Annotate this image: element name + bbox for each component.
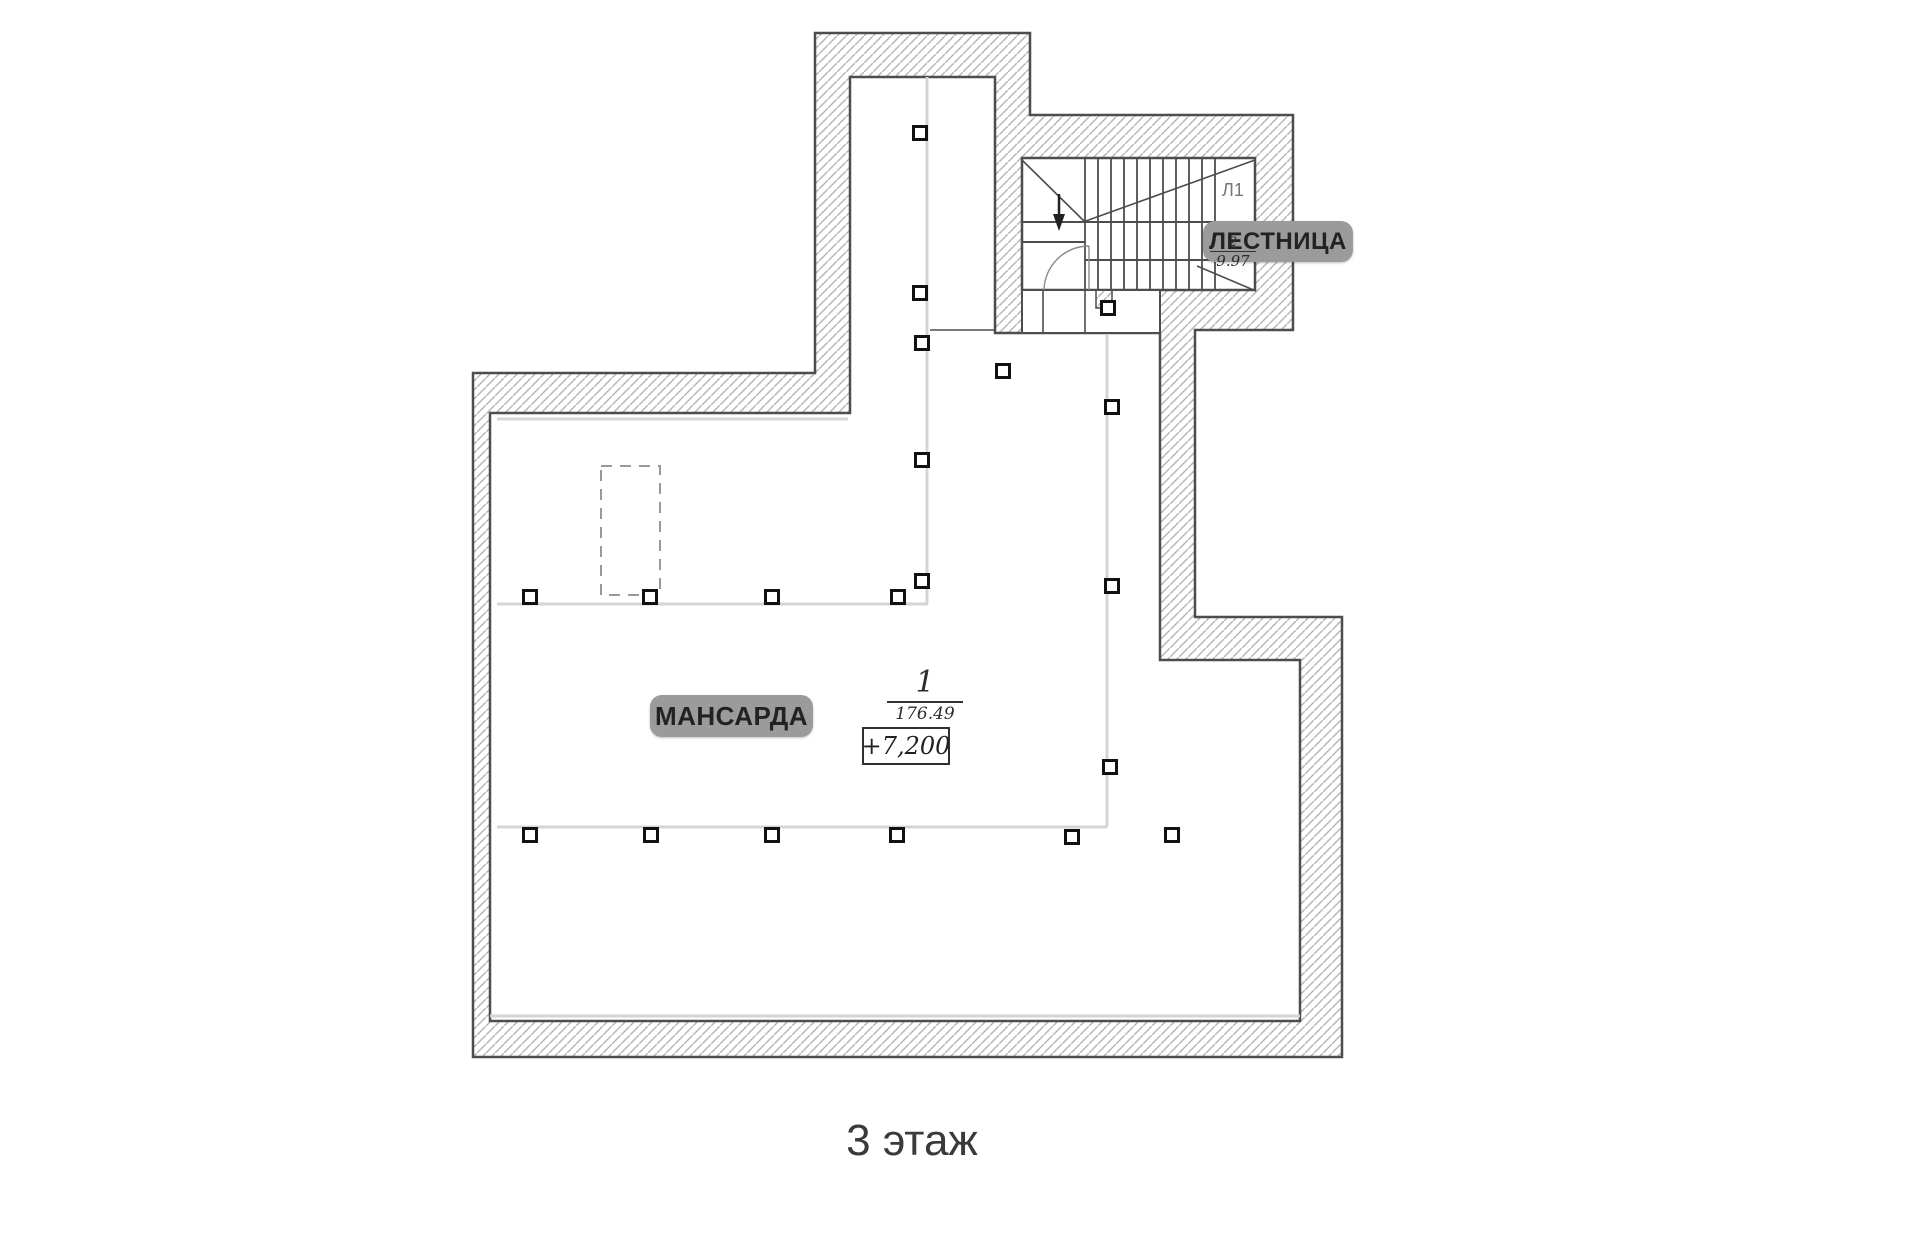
- column-marker: [766, 829, 779, 842]
- column-marker: [1104, 761, 1117, 774]
- room-number: 1: [887, 668, 963, 701]
- floor-plan-canvas: [0, 0, 1920, 1259]
- column-marker: [892, 591, 905, 604]
- room-name-tag: МАНСАРДА: [650, 695, 813, 737]
- column-marker: [524, 829, 537, 842]
- column-marker: [1102, 302, 1115, 315]
- stair-code-label: Л1: [1222, 180, 1244, 201]
- column-marker: [1106, 401, 1119, 414]
- room-area-marker: 1 176.49: [887, 668, 963, 723]
- column-marker: [914, 287, 927, 300]
- column-marker: [1106, 580, 1119, 593]
- floor-caption: 3 этаж: [762, 1116, 1062, 1166]
- column-marker: [645, 829, 658, 842]
- column-marker: [997, 365, 1010, 378]
- column-marker: [1166, 829, 1179, 842]
- floor-plan-page: МАНСАРДА ЛЕСТНИЦА Л1 1 176.49 2 9.97 +7,…: [0, 0, 1920, 1259]
- column-marker: [766, 591, 779, 604]
- dashed-shaft-outline: [601, 466, 660, 595]
- room-area-value: 176.49: [887, 701, 963, 723]
- column-marker: [524, 591, 537, 604]
- column-marker: [891, 829, 904, 842]
- elevation-mark: +7,200: [862, 727, 950, 765]
- stair-area-marker: 2 9.97: [1210, 236, 1256, 269]
- stair-area-value: 9.97: [1210, 251, 1256, 269]
- column-marker: [916, 575, 929, 588]
- column-marker: [916, 337, 929, 350]
- stair-room-number: 2: [1210, 236, 1256, 251]
- column-marker: [1066, 831, 1079, 844]
- column-marker: [914, 127, 927, 140]
- column-marker: [644, 591, 657, 604]
- column-marker: [916, 454, 929, 467]
